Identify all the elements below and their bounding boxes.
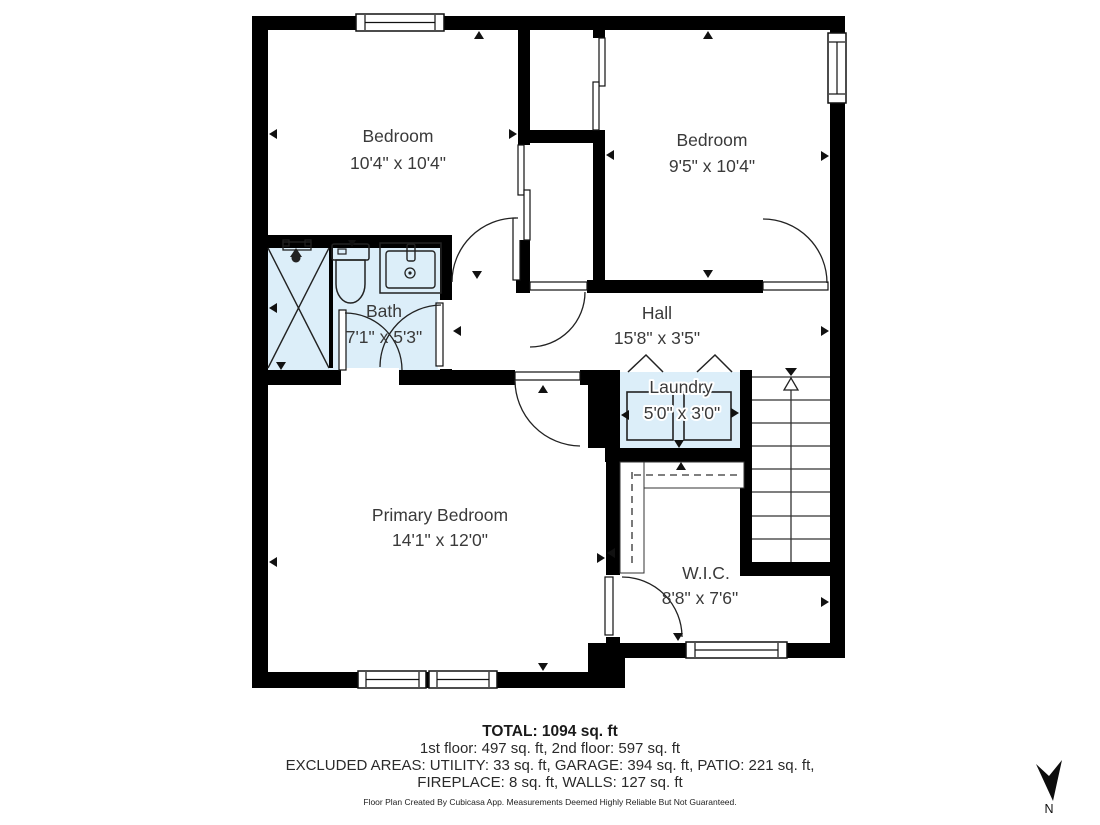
window-bedroom1-top — [356, 14, 444, 31]
laundry-bifold-right — [697, 355, 732, 372]
excluded-areas-text-1: EXCLUDED AREAS: UTILITY: 33 sq. ft, GARA… — [286, 757, 815, 774]
primary-door-arc — [515, 380, 580, 446]
laundry-bifold-left — [628, 355, 663, 372]
shower-partition — [329, 248, 333, 368]
total-area-text: TOTAL: 1094 sq. ft — [482, 723, 618, 740]
hall-closet-door-arc — [530, 292, 585, 347]
room-dims-bedroom2: 9'5" x 10'4" — [669, 156, 755, 176]
stairs-up-arrow-head — [784, 378, 798, 390]
floor-areas-text: 1st floor: 497 sq. ft, 2nd floor: 597 sq… — [420, 740, 681, 757]
room-dims-bedroom1: 10'4" x 10'4" — [350, 153, 446, 173]
room-label-hall: Hall — [642, 303, 672, 323]
bath-primary-doorway — [341, 368, 399, 387]
floor-plan-canvas: Bedroom 10'4" x 10'4" Bedroom 9'5" x 10'… — [0, 0, 1100, 825]
room-label-laundry: Laundry — [649, 377, 712, 397]
primary-door-leaf — [515, 372, 580, 380]
room-label-primary: Primary Bedroom — [372, 505, 508, 525]
window-primary-left — [358, 671, 426, 688]
room-label-bedroom2: Bedroom — [676, 130, 747, 150]
room-dims-laundry: 5'0" x 3'0" — [644, 403, 721, 423]
window-wic-bottom — [686, 642, 787, 658]
bath-floor — [268, 248, 440, 370]
room-label-wic: W.I.C. — [682, 563, 730, 583]
bedroom1-door-arc — [452, 218, 516, 282]
bedroom1-doorway — [452, 278, 516, 295]
summary-block: TOTAL: 1094 sq. ft 1st floor: 497 sq. ft… — [286, 723, 815, 807]
north-label: N — [1044, 802, 1053, 816]
room-dims-wic: 8'8" x 7'6" — [662, 588, 739, 608]
window-bedroom2-right — [828, 33, 846, 103]
closet1-slider-leaf-a — [518, 145, 524, 195]
room-dims-bath: 7'1" x 5'3" — [346, 327, 423, 347]
bath-hall-door-leaf — [436, 303, 443, 366]
bedroom2-door-leaf — [763, 282, 828, 290]
closet2-slider-leaf-a — [599, 38, 605, 86]
closet2-slider-leaf-b — [593, 82, 599, 130]
room-label-bath: Bath — [366, 301, 402, 321]
floor-plan-page: Bedroom 10'4" x 10'4" Bedroom 9'5" x 10'… — [0, 0, 1100, 825]
window-primary-right — [429, 671, 497, 688]
stairs-up-arrow — [785, 368, 797, 376]
room-dims-primary: 14'1" x 12'0" — [392, 530, 488, 550]
north-arrow-icon — [1036, 760, 1062, 801]
stairs — [752, 368, 830, 562]
disclaimer-text: Floor Plan Created By Cubicasa App. Meas… — [363, 797, 736, 807]
closet1-slider-leaf-b — [524, 190, 530, 240]
wic-door-leaf — [605, 577, 613, 635]
room-label-bedroom1: Bedroom — [362, 126, 433, 146]
wic-shelving — [620, 462, 744, 573]
hall-closet-door-leaf — [530, 282, 587, 290]
bedroom2-door-arc — [763, 219, 827, 283]
room-dims-hall: 15'8" x 3'5" — [614, 328, 700, 348]
compass: N — [1036, 760, 1062, 816]
excluded-areas-text-2: FIREPLACE: 8 sq. ft, WALLS: 127 sq. ft — [417, 774, 683, 791]
